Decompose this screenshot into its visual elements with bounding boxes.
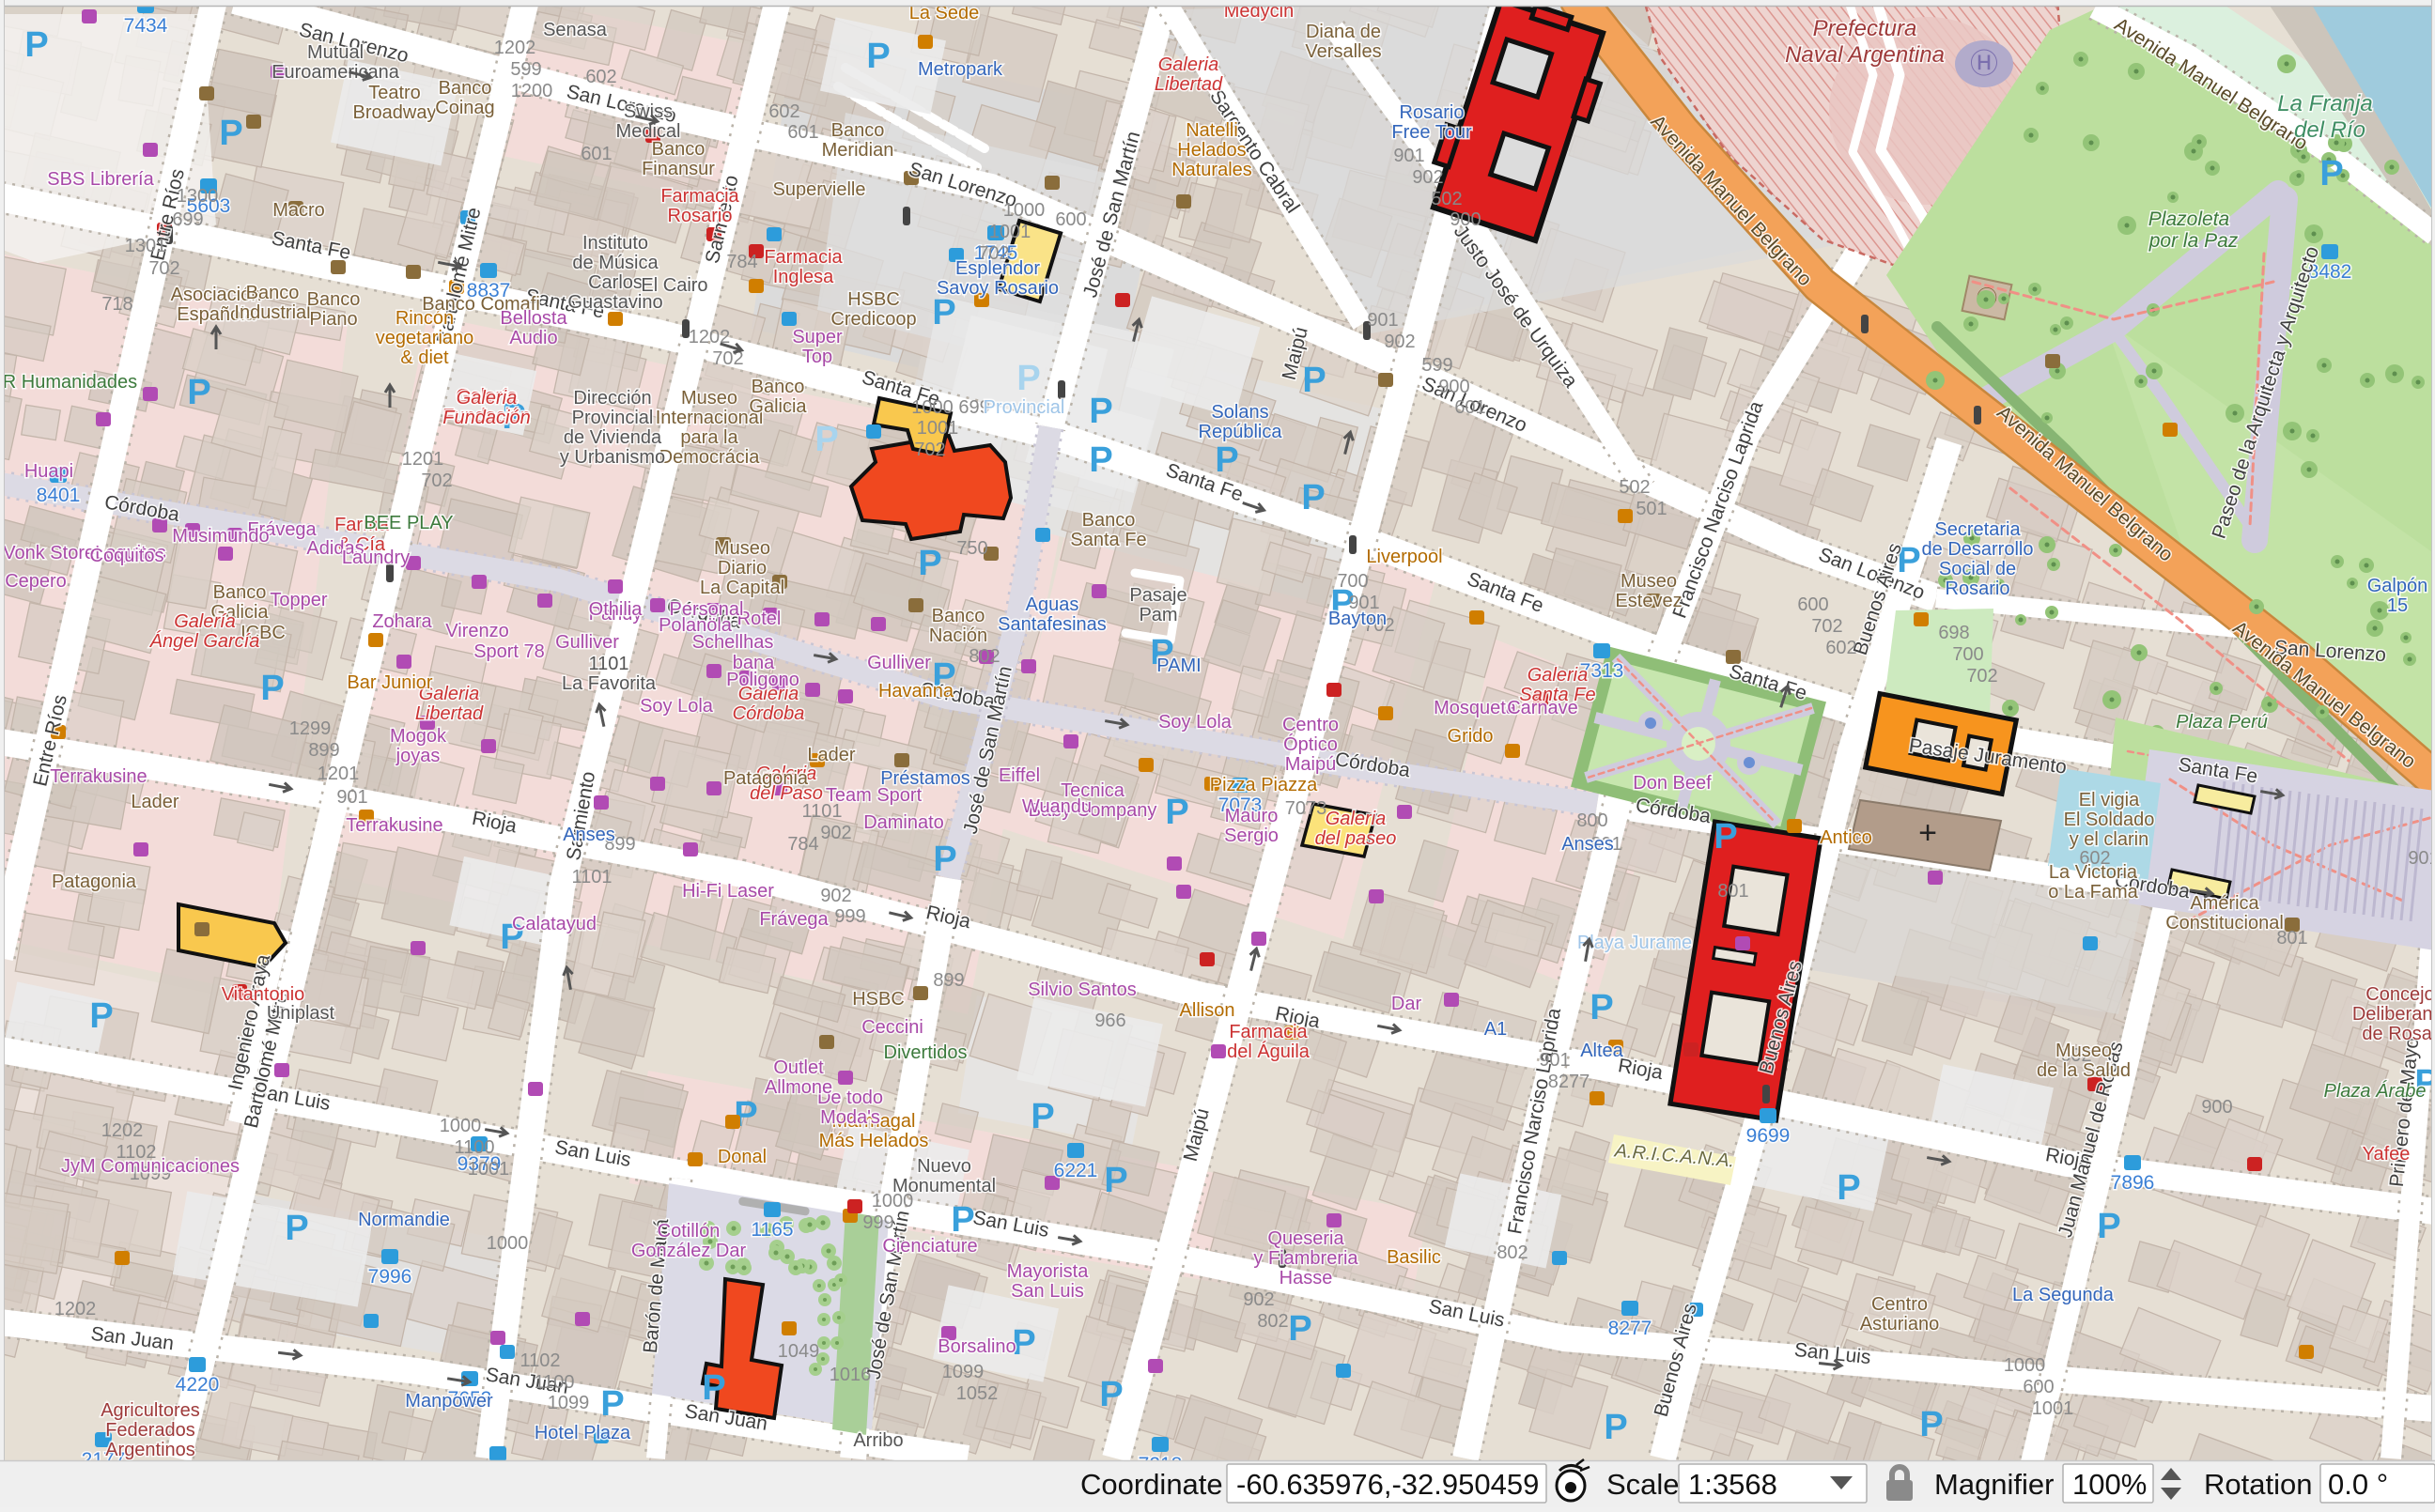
svg-text:902: 902: [1412, 167, 1443, 188]
svg-text:802: 802: [1257, 1311, 1288, 1332]
svg-text:601: 601: [787, 122, 818, 143]
svg-text:Coordinate: Coordinate: [1080, 1468, 1223, 1501]
svg-text:del paseo: del paseo: [1315, 828, 1397, 849]
svg-text:Banco: Banco: [1082, 510, 1136, 531]
svg-text:Museo: Museo: [681, 388, 737, 409]
svg-text:1202: 1202: [494, 38, 536, 58]
svg-text:Topper: Topper: [270, 590, 327, 610]
svg-text:Nuevo: Nuevo: [917, 1156, 971, 1177]
svg-text:Préstamos: Préstamos: [880, 768, 970, 789]
svg-text:Natelli: Natelli: [1186, 120, 1238, 141]
svg-text:Supervielle: Supervielle: [773, 179, 866, 200]
svg-text:Galeria: Galeria: [1158, 54, 1218, 75]
svg-text:PAMI: PAMI: [1156, 656, 1201, 676]
svg-text:1201: 1201: [318, 764, 360, 784]
svg-text:Galpón: Galpón: [2367, 576, 2428, 596]
svg-text:Rosario: Rosario: [668, 206, 733, 226]
svg-text:Huapi: Huapi: [24, 461, 73, 482]
svg-text:P: P: [1031, 1097, 1054, 1136]
svg-text:901: 901: [1367, 310, 1398, 331]
svg-text:15: 15: [2387, 595, 2408, 616]
svg-text:Outlet: Outlet: [773, 1057, 824, 1078]
svg-text:Rosario: Rosario: [1400, 102, 1465, 123]
svg-text:P: P: [219, 114, 242, 153]
svg-text:Cotillón: Cotillón: [658, 1221, 721, 1242]
svg-text:Poligono: Poligono: [726, 670, 799, 690]
svg-text:Finansur: Finansur: [642, 159, 715, 179]
svg-text:Manpower: Manpower: [405, 1391, 493, 1412]
svg-text:Banco: Banco: [752, 377, 805, 397]
svg-text:Grido: Grido: [1448, 726, 1494, 747]
svg-text:HSBC: HSBC: [852, 989, 905, 1010]
svg-text:Hotel Plaza: Hotel Plaza: [535, 1423, 631, 1443]
svg-text:Playa Jurame: Playa Jurame: [1577, 933, 1692, 953]
svg-text:P: P: [1604, 1408, 1627, 1447]
svg-text:P: P: [1089, 392, 1112, 431]
svg-text:Constitucional: Constitucional: [2165, 913, 2284, 933]
svg-text:P: P: [1104, 1161, 1127, 1200]
svg-text:1000 699: 1000 699: [911, 397, 989, 418]
svg-text:P: P: [1099, 1375, 1123, 1414]
svg-text:Diana de: Diana de: [1306, 22, 1381, 42]
svg-text:Argentinos: Argentinos: [105, 1440, 195, 1460]
svg-text:601: 601: [1454, 397, 1485, 418]
svg-text:Pasaje: Pasaje: [1129, 585, 1186, 606]
svg-text:Free Tour: Free Tour: [1391, 122, 1472, 143]
svg-text:Plaza Perú: Plaza Perú: [2176, 712, 2268, 733]
svg-text:Mosqueta: Mosqueta: [1434, 698, 1517, 718]
svg-text:+: +: [1918, 815, 1937, 851]
svg-text:1000: 1000: [1003, 200, 1046, 221]
svg-text:Anses: Anses: [1561, 834, 1614, 855]
svg-text:784: 784: [787, 834, 818, 855]
svg-text:Top: Top: [802, 347, 832, 367]
svg-text:Credicoop: Credicoop: [830, 309, 916, 330]
svg-text:750: 750: [956, 538, 987, 559]
svg-text:502: 502: [1431, 189, 1462, 209]
svg-text:Allmone: Allmone: [765, 1077, 832, 1098]
svg-text:1016: 1016: [830, 1365, 872, 1385]
svg-text:Broadway: Broadway: [353, 102, 437, 123]
svg-text:700: 700: [1952, 644, 1983, 665]
svg-text:702: 702: [1811, 616, 1842, 637]
svg-text:La Favorita: La Favorita: [562, 673, 657, 694]
svg-text:1165: 1165: [751, 1219, 793, 1241]
svg-text:Patagonia: Patagonia: [723, 768, 809, 789]
svg-text:1100: 1100: [534, 1372, 574, 1393]
svg-text:Moda's: Moda's: [820, 1107, 880, 1128]
svg-text:Othilia: Othilia: [589, 599, 644, 620]
svg-text:1052: 1052: [956, 1383, 999, 1404]
svg-text:Liverpool: Liverpool: [1366, 547, 1442, 567]
svg-text:o La Fama: o La Fama: [2048, 882, 2138, 903]
svg-text:Farmacia: Farmacia: [764, 247, 843, 268]
svg-text:501: 501: [1636, 499, 1667, 519]
svg-text:999: 999: [834, 906, 865, 927]
svg-text:y el clarin: y el clarin: [2070, 829, 2148, 850]
svg-text:Havanna: Havanna: [878, 681, 954, 702]
svg-text:P: P: [1837, 1168, 1860, 1208]
svg-text:Dar: Dar: [1391, 994, 1422, 1014]
svg-text:Deliberante: Deliberante: [2352, 1004, 2435, 1025]
svg-text:Monumental: Monumental: [892, 1176, 996, 1196]
svg-text:Bellosta: Bellosta: [500, 308, 567, 329]
svg-text:Plazoleta: Plazoleta: [2148, 208, 2229, 230]
svg-text:de Rosar: de Rosar: [2362, 1024, 2435, 1044]
svg-text:Rosario: Rosario: [1946, 579, 2010, 599]
svg-text:Naval Argentina: Naval Argentina: [1785, 42, 1945, 68]
svg-text:Allison: Allison: [1180, 1000, 1235, 1021]
svg-text:P: P: [1215, 440, 1238, 480]
svg-text:P: P: [933, 840, 956, 879]
svg-text:1101: 1101: [588, 654, 628, 674]
svg-text:Galería: Galería: [174, 611, 236, 632]
svg-text:y Urbanismo: y Urbanismo: [560, 447, 665, 468]
svg-text:Farmacia: Farmacia: [660, 186, 739, 207]
svg-text:Pizza Piazza: Pizza Piazza: [1210, 775, 1318, 795]
svg-text:P: P: [600, 1384, 624, 1424]
svg-text:P: P: [285, 1209, 308, 1248]
svg-text:Galeria: Galeria: [1326, 809, 1386, 829]
svg-text:Maipú: Maipú: [1285, 754, 1336, 775]
svg-text:1201: 1201: [402, 449, 444, 470]
svg-text:7896: 7896: [2111, 1172, 2155, 1194]
svg-text:Bar Junior: Bar Junior: [347, 672, 432, 693]
svg-text:Santa Fe: Santa Fe: [1519, 685, 1595, 705]
svg-text:Soy Lola: Soy Lola: [1158, 712, 1233, 733]
svg-text:902: 902: [1243, 1289, 1274, 1310]
svg-text:8401: 8401: [37, 485, 81, 506]
svg-text:Sport 78: Sport 78: [473, 641, 545, 662]
svg-text:Federados: Federados: [105, 1420, 195, 1441]
svg-text:P: P: [1302, 361, 1326, 400]
svg-text:Ⓗ: Ⓗ: [1970, 49, 1998, 80]
svg-text:999: 999: [862, 1212, 893, 1233]
svg-text:Gulliver: Gulliver: [867, 653, 931, 673]
svg-text:1000: 1000: [487, 1233, 529, 1254]
svg-text:901: 901: [2408, 848, 2435, 869]
svg-text:702: 702: [914, 440, 945, 460]
svg-text:Provincial: Provincial: [572, 408, 654, 428]
svg-text:Senasa: Senasa: [543, 20, 608, 40]
svg-text:A1: A1: [1484, 1019, 1507, 1040]
svg-text:7073: 7073: [1285, 798, 1327, 819]
svg-text:602: 602: [768, 101, 799, 122]
svg-text:Prefectura: Prefectura: [1813, 16, 1917, 41]
svg-text:600: 600: [2023, 1377, 2054, 1397]
svg-text:1:3568: 1:3568: [1688, 1468, 1777, 1501]
svg-text:Aguas: Aguas: [1026, 594, 1079, 615]
svg-text:del Águila: del Águila: [1227, 1041, 1311, 1062]
svg-text:Banco: Banco: [439, 78, 492, 99]
svg-text:600: 600: [1055, 209, 1086, 230]
svg-text:Banco: Banco: [932, 606, 985, 626]
svg-text:Museo: Museo: [1621, 571, 1677, 592]
svg-text:Banco: Banco: [307, 289, 361, 310]
svg-text:P: P: [932, 293, 955, 332]
svg-text:784: 784: [726, 252, 757, 272]
svg-text:P: P: [702, 1368, 725, 1408]
svg-text:966: 966: [1094, 1011, 1125, 1031]
svg-text:Plaza Árabe: Plaza Árabe: [2324, 1080, 2427, 1102]
svg-text:de Vivienda: de Vivienda: [564, 427, 662, 448]
svg-text:Mauro: Mauro: [1225, 806, 1279, 826]
svg-text:para la: para la: [680, 427, 738, 448]
svg-text:502: 502: [1619, 477, 1650, 498]
svg-text:698: 698: [1938, 623, 1969, 643]
svg-text:801: 801: [1717, 881, 1748, 902]
svg-text:Bayton: Bayton: [1328, 609, 1387, 629]
svg-text:Diario: Diario: [718, 558, 767, 579]
svg-text:1099: 1099: [548, 1393, 590, 1413]
svg-text:900: 900: [1450, 209, 1481, 230]
svg-text:del Río: del Río: [2294, 117, 2365, 143]
svg-text:Banco: Banco: [213, 582, 267, 603]
svg-text:Normandie: Normandie: [358, 1210, 450, 1230]
svg-text:& diet: & diet: [400, 347, 449, 368]
svg-text:La Capital: La Capital: [700, 578, 784, 598]
svg-text:602: 602: [1825, 638, 1856, 658]
svg-text:Farmacia: Farmacia: [1229, 1022, 1308, 1042]
svg-text:Mutual: Mutual: [307, 42, 364, 63]
svg-text:Concejo: Concejo: [2365, 984, 2434, 1005]
svg-text:1100: 1100: [454, 1137, 494, 1158]
svg-text:1102: 1102: [520, 1350, 560, 1371]
svg-text:P: P: [1016, 359, 1040, 398]
svg-text:Savoy Rosario: Savoy Rosario: [937, 278, 1059, 299]
svg-text:Dirección: Dirección: [573, 388, 651, 409]
svg-text:Eiffel: Eiffel: [999, 765, 1040, 786]
svg-text:P: P: [1301, 478, 1325, 517]
svg-text:Versalles: Versalles: [1305, 41, 1381, 62]
svg-text:600: 600: [1797, 594, 1828, 615]
svg-text:0.0 °: 0.0 °: [2328, 1468, 2388, 1501]
svg-text:1202: 1202: [101, 1120, 144, 1141]
svg-text:902: 902: [820, 886, 851, 906]
svg-text:901: 901: [1539, 1050, 1570, 1071]
svg-text:900: 900: [1438, 377, 1469, 397]
svg-text:699: 699: [172, 209, 203, 230]
svg-text:Uniplast: Uniplast: [267, 1003, 335, 1024]
svg-text:de Música: de Música: [572, 253, 659, 273]
svg-text:Laundry: Laundry: [342, 548, 410, 568]
svg-text:La Victoria: La Victoria: [2049, 862, 2138, 883]
svg-text:San Luis: San Luis: [1011, 1281, 1084, 1302]
svg-text:1001: 1001: [917, 418, 959, 439]
svg-text:Gulliver: Gulliver: [555, 632, 619, 653]
svg-text:Metropark: Metropark: [918, 59, 1003, 80]
svg-text:601: 601: [581, 144, 612, 164]
svg-text:1000: 1000: [2004, 1355, 2046, 1376]
svg-text:Soy Lola: Soy Lola: [640, 696, 714, 717]
svg-text:por la Paz: por la Paz: [2148, 230, 2239, 252]
svg-text:Santa Fe: Santa Fe: [1070, 530, 1146, 550]
svg-text:El vigia: El vigia: [2079, 790, 2140, 810]
svg-text:El Soldado: El Soldado: [2064, 810, 2155, 830]
svg-text:702: 702: [421, 471, 452, 491]
svg-text:Helados: Helados: [1177, 140, 1246, 161]
svg-text:HSBC: HSBC: [847, 289, 900, 310]
svg-text:1001: 1001: [989, 222, 1031, 242]
svg-text:Asturiano: Asturiano: [1860, 1314, 1940, 1335]
svg-text:Córdoba: Córdoba: [733, 703, 805, 724]
svg-text:Altea: Altea: [1580, 1041, 1623, 1061]
svg-text:Vitantonio: Vitantonio: [222, 984, 305, 1005]
svg-text:Estevez: Estevez: [1615, 591, 1682, 611]
svg-text:de Desarrollo: de Desarrollo: [1922, 539, 2034, 560]
svg-text:Macro: Macro: [272, 200, 325, 221]
svg-text:Lader: Lader: [131, 792, 178, 812]
svg-text:700: 700: [1337, 571, 1368, 592]
svg-text:Calatayud: Calatayud: [512, 914, 597, 934]
svg-text:Audio: Audio: [509, 328, 557, 348]
svg-text:702: 702: [148, 258, 179, 279]
svg-text:Inglesa: Inglesa: [773, 267, 834, 287]
svg-text:Scale: Scale: [1606, 1468, 1680, 1501]
svg-text:Lader: Lader: [807, 745, 855, 765]
svg-text:901: 901: [336, 787, 367, 808]
svg-text:P: P: [187, 373, 210, 412]
svg-text:802: 802: [1497, 1242, 1528, 1263]
svg-text:Super: Super: [792, 327, 843, 347]
svg-text:Nación: Nación: [929, 625, 987, 646]
svg-text:Donal: Donal: [718, 1147, 767, 1167]
svg-text:1001: 1001: [2032, 1398, 2074, 1419]
svg-text:Musimundo: Musimundo: [172, 526, 269, 547]
svg-text:González Dar: González Dar: [631, 1241, 747, 1261]
svg-text:Pam: Pam: [1139, 605, 1177, 625]
svg-text:1000: 1000: [440, 1116, 482, 1136]
svg-text:899: 899: [933, 970, 964, 991]
svg-text:Patagonia: Patagonia: [52, 872, 137, 892]
svg-text:Teatro: Teatro: [368, 83, 421, 103]
svg-text:Hi-Fi Laser: Hi-Fi Laser: [682, 881, 774, 902]
svg-text:joyas: joyas: [395, 746, 441, 766]
svg-text:UNR Humanidades: UNR Humanidades: [0, 372, 137, 393]
svg-text:P: P: [1590, 988, 1613, 1027]
svg-text:Personal: Personal: [670, 599, 744, 620]
svg-text:P: P: [2097, 1207, 2120, 1246]
svg-text:Terrakusine: Terrakusine: [346, 815, 442, 836]
svg-text:República: República: [1199, 422, 1283, 442]
svg-text:La Franja: La Franja: [2277, 91, 2372, 116]
svg-text:Terrakusine: Terrakusine: [50, 766, 147, 787]
svg-text:Galeria: Galeria: [457, 388, 517, 409]
svg-text:Carlos: Carlos: [588, 272, 643, 293]
svg-text:SBS Librería: SBS Librería: [47, 169, 154, 190]
svg-text:1300: 1300: [177, 186, 219, 207]
svg-text:Borsalino: Borsalino: [938, 1336, 1016, 1357]
svg-text:902: 902: [1384, 332, 1415, 352]
svg-text:Democrácia: Democrácia: [659, 447, 761, 468]
svg-text:Silvio Santos: Silvio Santos: [1028, 980, 1137, 1000]
svg-text:Antico: Antico: [1820, 827, 1872, 848]
svg-text:Óptico: Óptico: [1283, 733, 1338, 755]
svg-text:Social de: Social de: [1939, 559, 2016, 579]
svg-text:901: 901: [1393, 146, 1424, 166]
svg-text:599: 599: [510, 59, 541, 80]
svg-text:Sergio: Sergio: [1224, 825, 1279, 846]
svg-text:Museo: Museo: [714, 538, 770, 559]
svg-text:Banco: Banco: [652, 139, 706, 160]
svg-text:902: 902: [820, 823, 851, 843]
svg-text:P: P: [89, 996, 113, 1036]
svg-text:Zohara: Zohara: [372, 611, 432, 632]
svg-text:Mayorista: Mayorista: [1007, 1261, 1090, 1282]
svg-text:Coquitos: Coquitos: [90, 546, 164, 566]
svg-text:1202: 1202: [54, 1299, 97, 1319]
svg-text:Galicia: Galicia: [749, 396, 807, 417]
svg-text:de la Salud: de la Salud: [2037, 1060, 2131, 1081]
svg-text:vegetariano: vegetariano: [376, 328, 474, 348]
svg-text:9699: 9699: [1746, 1125, 1791, 1147]
svg-text:P: P: [1089, 440, 1112, 480]
svg-text:Queseria: Queseria: [1267, 1228, 1344, 1249]
svg-text:Arribo: Arribo: [853, 1430, 903, 1451]
svg-text:1299: 1299: [289, 718, 332, 739]
svg-text:702: 702: [1966, 666, 1997, 687]
svg-text:Cienciature: Cienciature: [882, 1236, 977, 1257]
svg-text:P: P: [814, 420, 838, 459]
svg-text:Rotation: Rotation: [2204, 1468, 2312, 1501]
svg-text:P: P: [866, 37, 890, 76]
svg-text:Santafesinas: Santafesinas: [998, 614, 1107, 635]
svg-text:Centro: Centro: [1282, 715, 1339, 735]
svg-text:La Segunda: La Segunda: [2012, 1285, 2115, 1305]
svg-text:Libertad: Libertad: [1155, 74, 1223, 95]
svg-text:602: 602: [585, 67, 616, 87]
svg-text:1049: 1049: [778, 1341, 820, 1362]
svg-text:Libertad: Libertad: [415, 703, 484, 724]
svg-text:Ceccini: Ceccini: [861, 1017, 923, 1038]
svg-text:1099: 1099: [942, 1362, 985, 1382]
svg-text:599: 599: [1421, 355, 1452, 376]
svg-text:Hasse: Hasse: [1280, 1268, 1333, 1288]
svg-text:6221: 6221: [1054, 1160, 1098, 1181]
svg-text:Coinag: Coinag: [435, 98, 494, 118]
svg-text:1200: 1200: [511, 81, 553, 101]
svg-text:JyM Comunicaciones: JyM Comunicaciones: [61, 1156, 240, 1177]
svg-text:7434: 7434: [124, 15, 168, 37]
svg-text:Ángel García: Ángel García: [149, 630, 260, 652]
svg-text:Rotel: Rotel: [737, 609, 782, 629]
svg-text:Basilic: Basilic: [1387, 1247, 1441, 1268]
svg-text:Industrial: Industrial: [234, 302, 310, 323]
svg-text:Frávega: Frávega: [759, 909, 829, 930]
svg-text:Wuandu: Wuandu: [1022, 796, 1092, 817]
svg-text:P: P: [1919, 1405, 1943, 1444]
svg-text:Naturales: Naturales: [1171, 160, 1252, 180]
svg-text:América: América: [2190, 893, 2259, 914]
svg-text:Don Beef: Don Beef: [1633, 773, 1712, 794]
svg-text:El Cairo: El Cairo: [641, 275, 707, 296]
svg-text:900: 900: [2201, 1097, 2232, 1118]
svg-text:Yafee: Yafee: [2363, 1144, 2411, 1165]
svg-text:Banco: Banco: [831, 120, 885, 141]
svg-text:P: P: [2319, 154, 2343, 193]
svg-text:Más Helados: Más Helados: [819, 1131, 929, 1151]
svg-text:800: 800: [1576, 810, 1607, 831]
svg-text:1301: 1301: [125, 236, 167, 256]
svg-text:P: P: [1165, 793, 1188, 832]
svg-text:Virenzo: Virenzo: [445, 621, 508, 641]
svg-text:Daminato: Daminato: [863, 812, 944, 833]
svg-text:Galeria: Galeria: [1528, 665, 1588, 686]
svg-text:4220: 4220: [176, 1374, 220, 1396]
svg-text:P: P: [1714, 817, 1737, 856]
svg-text:Meridian: Meridian: [822, 140, 894, 161]
svg-text:802: 802: [969, 646, 1000, 667]
